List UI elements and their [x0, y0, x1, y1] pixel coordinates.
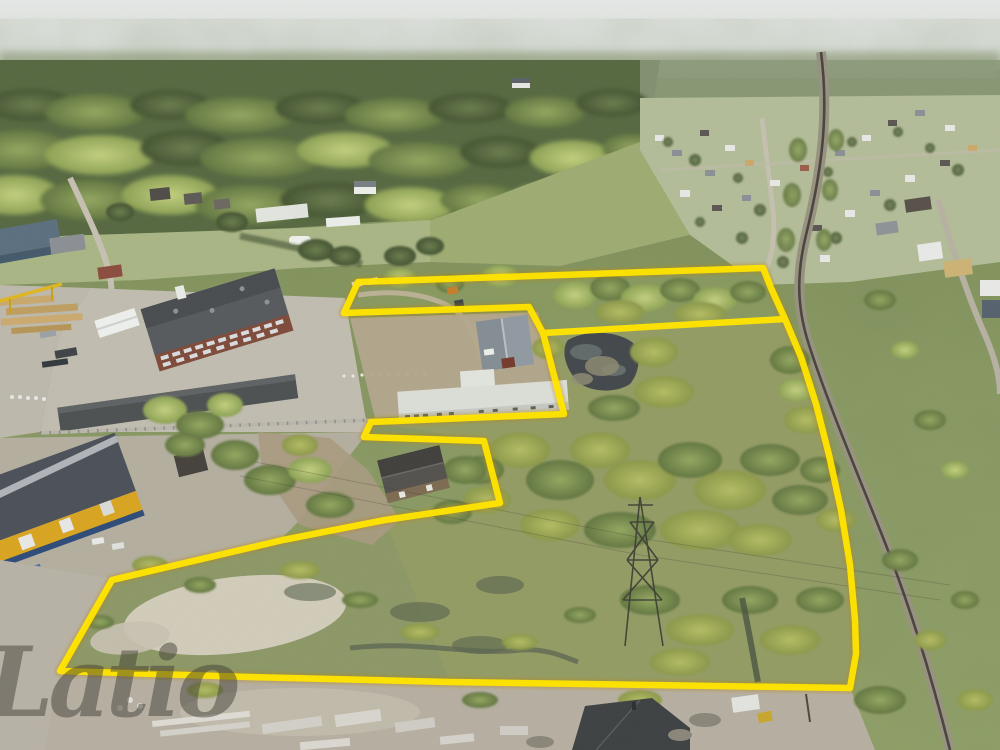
aerial-photo-canvas: Latio [0, 0, 1000, 750]
watermark-logo: Latio [0, 626, 238, 739]
aerial-photo: Latio [0, 0, 1000, 750]
